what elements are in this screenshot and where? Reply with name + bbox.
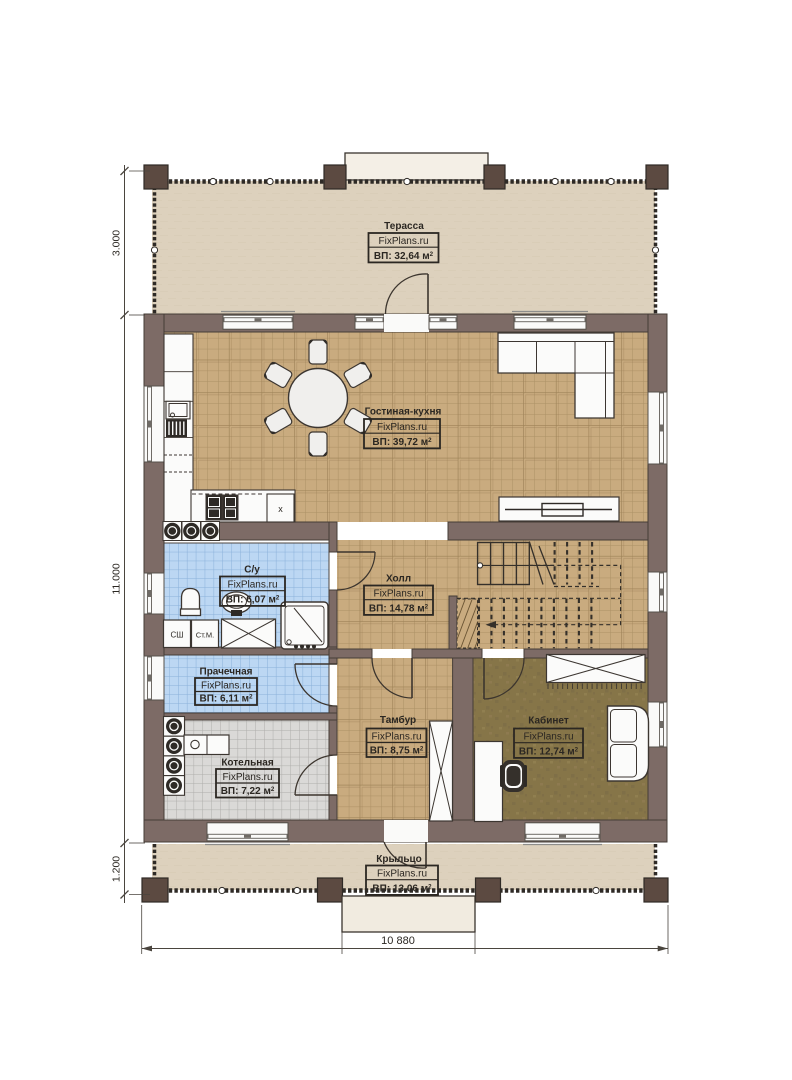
svg-text:Ст.М.: Ст.М.	[196, 631, 214, 640]
svg-text:FixPlans.ru: FixPlans.ru	[371, 731, 421, 742]
svg-text:Крыльцо: Крыльцо	[376, 854, 422, 865]
svg-text:ВП: 12,74 м2: ВП: 12,74 м2	[519, 746, 579, 757]
svg-text:ВП: 6,07 м2: ВП: 6,07 м2	[226, 594, 280, 605]
svg-text:Прачечная: Прачечная	[200, 667, 253, 678]
svg-text:FixPlans.ru: FixPlans.ru	[373, 589, 423, 600]
svg-text:Тамбур: Тамбур	[380, 714, 416, 726]
svg-text:ВП: 8,75 м2: ВП: 8,75 м2	[370, 745, 424, 756]
svg-text:FixPlans.ru: FixPlans.ru	[201, 680, 251, 691]
svg-text:Котельная: Котельная	[221, 758, 274, 769]
svg-text:FixPlans.ru: FixPlans.ru	[378, 236, 428, 247]
svg-text:Гостиная-кухня: Гостиная-кухня	[365, 407, 442, 418]
svg-text:FixPlans.ru: FixPlans.ru	[227, 580, 277, 591]
svg-text:ВП: 6,11 м2: ВП: 6,11 м2	[199, 693, 253, 704]
svg-text:Терасса: Терасса	[384, 221, 424, 232]
svg-text:ВП: 7,22 м2: ВП: 7,22 м2	[221, 786, 275, 797]
svg-text:С/у: С/у	[244, 565, 260, 576]
svg-text:FixPlans.ru: FixPlans.ru	[377, 422, 427, 433]
svg-text:х: х	[278, 504, 283, 514]
svg-text:Холл: Холл	[386, 574, 411, 585]
svg-text:FixPlans.ru: FixPlans.ru	[523, 732, 573, 743]
svg-text:СШ: СШ	[170, 631, 183, 640]
svg-text:ВП: 14,78 м2: ВП: 14,78 м2	[369, 603, 429, 614]
svg-text:11.000: 11.000	[111, 563, 123, 594]
svg-text:1.200: 1.200	[111, 856, 123, 882]
svg-text:ВП: 39,72 м2: ВП: 39,72 м2	[372, 437, 432, 448]
svg-text:FixPlans.ru: FixPlans.ru	[377, 869, 427, 880]
svg-text:10 880: 10 880	[381, 935, 415, 947]
svg-text:ВП: 13,06 м2: ВП: 13,06 м2	[372, 883, 432, 894]
svg-text:3.000: 3.000	[111, 230, 123, 256]
svg-text:FixPlans.ru: FixPlans.ru	[222, 772, 272, 783]
svg-text:ВП: 32,64 м2: ВП: 32,64 м2	[374, 251, 434, 262]
svg-text:Кабинет: Кабинет	[528, 715, 569, 727]
